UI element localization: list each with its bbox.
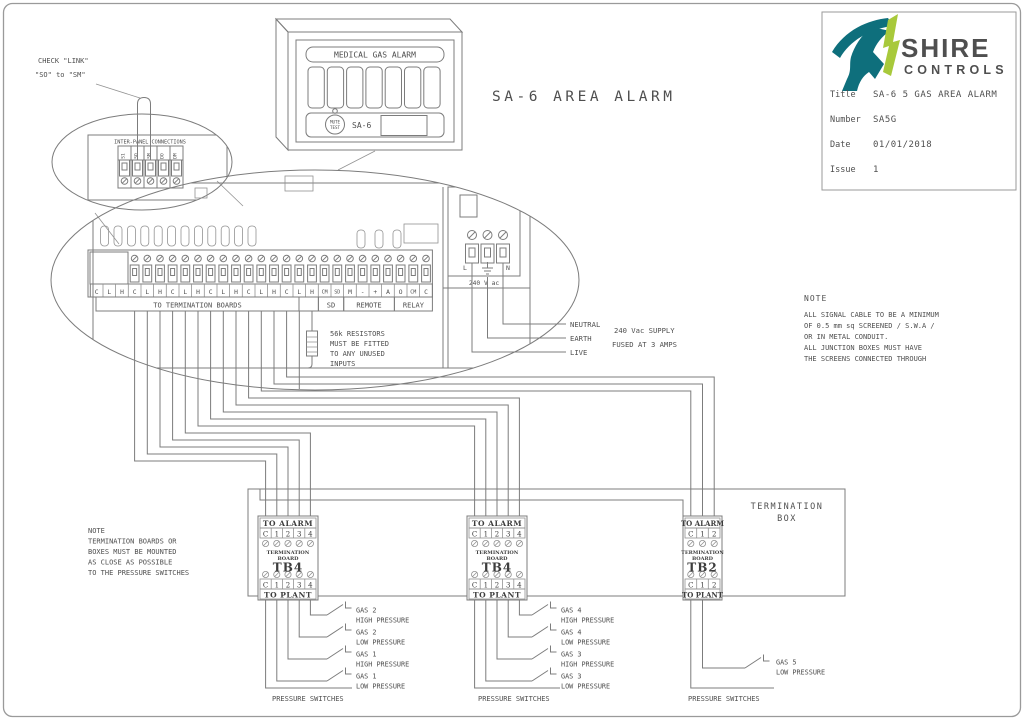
mute-label: MUTE [330,120,341,125]
terminal-label: M [348,289,352,296]
terminal-label: H [310,289,314,296]
terminal-label: O [399,289,403,296]
board-name: TB2 [687,561,717,575]
model-label: SA-6 [352,121,371,130]
terminal-label: L [107,289,111,296]
group-label: RELAY [403,302,425,310]
panel-header-label: MEDICAL GAS ALARM [334,51,416,60]
pressure-switch-group-3: GAS 5 LOW PRESSURE PRESSURE SWITCHES [688,600,825,703]
cell-label: 2 [286,582,290,590]
check-link-line1: CHECK "LINK" [38,57,89,65]
level-label: LOW PRESSURE [776,669,825,677]
title-value: SA-6 5 GAS AREA ALARM [873,90,997,100]
test-label: TEST [330,125,341,130]
cell-label: 1 [275,582,279,590]
board-name: TB4 [482,561,512,575]
level-label: LOW PRESSURE [356,683,405,691]
resistor-note-line: 56k RESISTORS [330,330,385,338]
terminal-label: DO [160,153,166,159]
terminal-label: C [209,289,213,296]
cone-line [338,151,375,170]
terminal-screws [130,255,430,282]
terminal-label: C [247,289,251,296]
voltage-label: 240 V ac [469,280,500,287]
cell-label: 1 [484,582,488,590]
gas-label: GAS 4 [561,629,581,637]
terminal-label: S1 [121,153,127,159]
cell-label: C [688,531,693,539]
gas-label: GAS 2 [356,607,376,615]
cell-label: C [688,582,693,590]
switch-wires [475,600,560,688]
neutral-label: NEUTRAL [570,320,600,329]
to-plant-label: TO PLANT [682,591,724,600]
gas-label: GAS 1 [356,651,376,659]
title-label: Title [830,90,856,100]
terminal-strip: C L H C L H C L H C L H C L H C L H CM S… [88,250,432,311]
terminal-label: H [120,289,124,296]
terminal-label: + [373,289,377,296]
cell-label: 2 [712,531,716,539]
switch-wires [266,600,352,688]
supply-note-line1: 240 Vac SUPPLY [614,326,675,335]
terminal-label: A [386,289,390,296]
group-label: SD [327,302,335,310]
gas-label: GAS 3 [561,651,581,659]
to-alarm-label: TO ALARM [681,519,724,528]
board-name: TB4 [273,561,303,575]
cell-label: 1 [275,531,279,539]
cell-label: C [472,582,477,590]
cell-label: 2 [286,531,290,539]
terminal-label: H [234,289,238,296]
note-line: THE SCREENS CONNECTED THROUGH [804,355,926,363]
box-bus-wire [260,489,683,516]
cell-label: 2 [495,582,499,590]
cell-label: C [472,531,477,539]
cell-label: 4 [517,531,522,539]
mounting-note: NOTE TERMINATION BOARDS OR BOXES MUST BE… [88,527,189,577]
cell-label: 3 [506,531,510,539]
level-label: HIGH PRESSURE [356,661,409,669]
terminal-label: SM [147,153,153,159]
resistor-note-line: INPUTS [330,360,355,368]
alarm-panel: MEDICAL GAS ALARM MUTE TEST SA-6 [276,19,462,170]
live-label: LIVE [570,348,587,357]
pressure-switch-group-1: GAS 2 HIGH PRESSURE GAS 2 LOW PRESSURE G… [266,600,410,703]
gas-label: GAS 1 [356,673,376,681]
termination-box: TERMINATION BOX [248,489,845,596]
mains-compartment: L N 240 V ac [443,187,530,288]
terminal-label: L [183,289,187,296]
terminal-label: SO [134,153,140,159]
cell-label: 3 [297,531,301,539]
group-label: TO TERMINATION BOARDS [153,302,242,310]
resistor-note-line: MUST BE FITTED [330,340,389,348]
pressure-switches-caption: PRESSURE SWITCHES [478,695,550,703]
mains-supply: NEUTRAL EARTH LIVE 240 Vac SUPPLY FUSED … [472,263,677,357]
gas-label: GAS 3 [561,673,581,681]
leader-line [96,84,140,98]
terminal-group-row: TO TERMINATION BOARDS SD REMOTE RELAY [96,297,432,311]
to-plant-label: TO PLANT [473,591,521,600]
terminal-label: C [95,289,99,296]
brand-name: SHIRE [901,33,990,63]
termination-box-label2: BOX [777,514,797,524]
pressure-switch-group-2: GAS 4 HIGH PRESSURE GAS 4 LOW PRESSURE G… [475,600,615,703]
note-line: OF 0.5 mm sq SCREENED / S.W.A / [804,322,935,330]
gas-label: GAS 2 [356,629,376,637]
terminal-strip-labels: C L H C L H C L H C L H C L H C L H CM S… [95,289,428,296]
note-line: OR IN METAL CONDUIT. [804,333,888,341]
terminal-label: L [221,289,225,296]
fuse-holder [460,195,477,217]
terminal-label: H [196,289,200,296]
earth-symbol-icon [482,262,493,274]
terminal-label: SD [334,290,340,296]
note-line: BOXES MUST BE MOUNTED [88,548,177,556]
note-line: TO THE PRESSURE SWITCHES [88,569,189,577]
switch-wires [691,600,774,688]
cell-label: C [263,582,268,590]
level-label: HIGH PRESSURE [356,617,409,625]
note-title: NOTE [804,294,827,303]
terminal-label: L [259,289,263,296]
terminal-label: - [361,289,365,296]
terminal-label: CM [322,290,328,296]
group-label: REMOTE [356,302,381,310]
inter-panel-terminals [120,160,182,184]
terminal-label: H [158,289,162,296]
signal-cable-note: NOTE ALL SIGNAL CABLE TO BE A MINIMUM OF… [804,294,939,363]
note-line: AS CLOSE AS POSSIBLE [88,559,172,567]
check-link-note: CHECK "LINK" "SO" to "SM" [35,57,140,98]
date-value: 01/01/2018 [873,140,932,150]
cell-label: 3 [506,582,510,590]
termination-board-tb4-2: TO ALARM C 1 2 3 4 TERMINATION BOARD TB4… [467,516,527,600]
terminal-label: L [145,289,149,296]
to-alarm-label: TO ALARM [263,519,313,528]
live-terminal-label: L [463,264,467,272]
terminal-label: C [424,289,428,296]
number-value: SA5G [873,115,897,125]
level-label: HIGH PRESSURE [561,661,614,669]
cone-line [217,181,243,206]
terminal-label: H [272,289,276,296]
level-label: LOW PRESSURE [356,639,405,647]
level-label: LOW PRESSURE [561,639,610,647]
pressure-switches-caption: PRESSURE SWITCHES [688,695,760,703]
date-label: Date [830,140,850,150]
wiring-diagram: SHIRE CONTROLS Title SA-6 5 GAS AREA ALA… [0,0,1024,720]
level-label: LOW PRESSURE [561,683,610,691]
note-line: TERMINATION BOARDS OR [88,538,177,546]
terminal-label: C [285,289,289,296]
to-alarm-label: TO ALARM [472,519,522,528]
supply-note-line2: FUSED AT 3 AMPS [612,340,677,349]
cell-label: 2 [712,582,716,590]
label-window [381,116,427,136]
cone-line [95,213,119,244]
shire-controls-logo-icon [832,14,900,91]
diagram-title: SA-6 AREA ALARM [492,89,675,105]
cell-label: 1 [700,531,704,539]
pressure-switches-caption: PRESSURE SWITCHES [272,695,344,703]
cell-label: 4 [308,582,313,590]
issue-label: Issue [830,165,856,175]
neutral-terminal-label: N [506,264,510,272]
issue-value: 1 [873,165,879,175]
note-line: ALL JUNCTION BOXES MUST HAVE [804,344,922,352]
to-plant-label: TO PLANT [264,591,312,600]
title-block: SHIRE CONTROLS Title SA-6 5 GAS AREA ALA… [822,12,1016,190]
note-line: NOTE [88,527,105,535]
termination-box-label1: TERMINATION [751,502,824,512]
level-label: HIGH PRESSURE [561,617,614,625]
cell-label: 4 [308,531,313,539]
note-line: ALL SIGNAL CABLE TO BE A MINIMUM [804,311,939,319]
gas-label: GAS 4 [561,607,581,615]
terminal-label: L [297,289,301,296]
termination-board-tb4-1: TO ALARM C 1 2 3 4 TERMINATION BOARD TB4… [258,516,318,600]
blank-terminal-cover [90,252,128,284]
inter-panel-inspection: INTER-PANEL CONNECTIONS S1 SO SM DO DM [52,98,243,245]
earth-label: EARTH [570,334,592,343]
brand-sub: CONTROLS [904,63,1008,77]
terminal-label: C [133,289,137,296]
cell-label: 2 [495,531,499,539]
check-link-line2: "SO" to "SM" [35,71,86,79]
termination-board-tb2: TO ALARM C 1 2 TERMINATION BOARD TB2 C 1… [681,516,724,600]
pcb-components [101,176,438,248]
cell-label: 1 [700,582,704,590]
terminal-label: C [171,289,175,296]
schematic-page: SHIRE CONTROLS Title SA-6 5 GAS AREA ALA… [0,0,1024,720]
cell-label: C [263,531,268,539]
indicator-windows [308,67,440,108]
terminal-label: DM [173,153,179,159]
terminal-label: CM [410,290,416,296]
panel-interior: C L H C L H C L H C L H C L H C L H CM S… [88,176,530,368]
cell-label: 3 [297,582,301,590]
number-label: Number [830,115,861,125]
cell-label: 4 [517,582,522,590]
cell-label: 1 [484,531,488,539]
gas-label: GAS 5 [776,659,796,667]
resistor-note-line: TO ANY UNUSED [330,350,385,358]
